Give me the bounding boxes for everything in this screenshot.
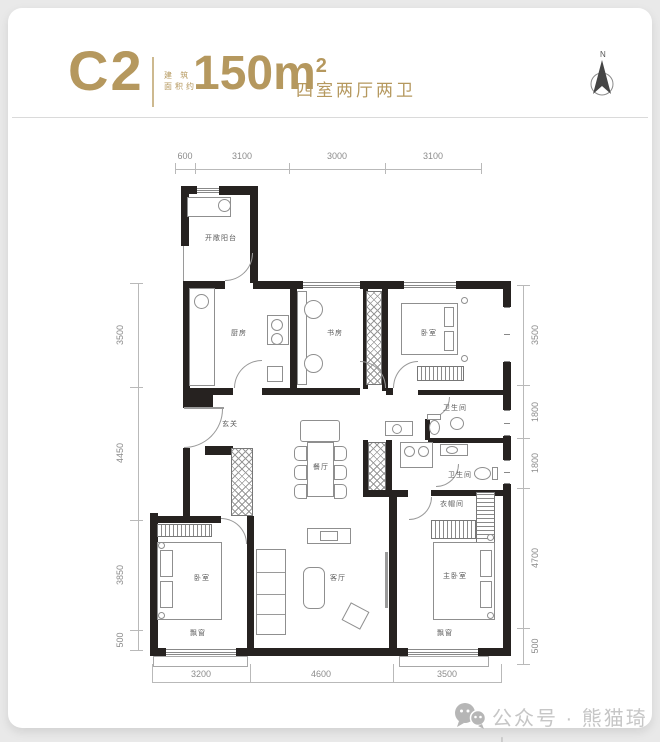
sofa-cushion-line: [257, 594, 285, 595]
wall-segment: [181, 186, 197, 194]
dim-top-1: 3100: [232, 151, 252, 161]
console-detail: [320, 531, 338, 541]
bay-window-sill-right: [399, 656, 489, 667]
dim-tick: [250, 664, 251, 682]
pillow: [444, 331, 454, 351]
dining-chair: [294, 465, 307, 480]
pillow: [160, 581, 173, 608]
sofa-cushion-line: [257, 572, 285, 573]
burner: [271, 319, 283, 331]
sofa-cushion-line: [257, 614, 285, 615]
wechat-eye: [460, 710, 463, 713]
balcony-rail-line: [183, 246, 184, 283]
bath-lower-window: [504, 460, 510, 484]
dining-chair: [334, 465, 347, 480]
wall-segment: [503, 281, 511, 307]
wechat-eye: [467, 710, 470, 713]
dim-tick: [517, 385, 530, 386]
room-label-dining: 餐厅: [313, 462, 329, 472]
dim-tick: [517, 285, 530, 286]
entry-door-leaf: [184, 407, 224, 409]
wall-segment: [363, 490, 408, 497]
wall-segment: [456, 281, 510, 289]
bay-right-window: [408, 649, 478, 655]
bath-sink: [450, 417, 464, 430]
dim-bottom-1: 4600: [311, 669, 331, 679]
dim-tick: [130, 650, 143, 651]
nightstand-lamp: [461, 355, 468, 362]
wechat-bubble-small: [471, 711, 486, 726]
wall-segment: [389, 497, 397, 648]
compass-needle: [593, 60, 611, 94]
room-label-bay-right: 飘窗: [437, 628, 453, 638]
wall-segment: [478, 648, 510, 656]
room-label-cloakroom: 衣帽间: [440, 499, 464, 509]
dim-right-1: 1800: [530, 402, 540, 422]
radiator: [157, 524, 212, 537]
wall-segment: [247, 516, 254, 648]
coffee-table: [303, 567, 325, 609]
dim-tick: [517, 664, 530, 665]
wechat-eye: [474, 716, 477, 719]
wall-segment: [205, 446, 233, 455]
bedroom-window: [404, 282, 456, 288]
pillow: [480, 550, 492, 577]
vanity-sink: [392, 424, 402, 434]
dim-tick: [385, 163, 386, 174]
wall-segment: [386, 388, 393, 395]
wall-segment: [183, 448, 190, 516]
kitchen-sink: [194, 294, 209, 309]
dim-right-0: 3500: [530, 325, 540, 345]
room-label-kitchen: 厨房: [231, 328, 247, 338]
bath-sink: [446, 446, 458, 454]
layout-text: 四室两厅两卫: [296, 76, 416, 101]
wall-segment: [386, 440, 392, 497]
dim-top-2: 3000: [327, 151, 347, 161]
dim-left-0: 3500: [115, 325, 125, 345]
dim-left-1: 4450: [115, 443, 125, 463]
tv-on-wall: [385, 552, 388, 608]
floorplan-card: [8, 8, 652, 728]
study-chair: [304, 300, 323, 319]
foyer-closet-hatch: [231, 448, 253, 516]
nightstand-lamp: [158, 612, 165, 619]
room-label-study: 书房: [327, 328, 343, 338]
wall-segment: [250, 186, 258, 283]
room-label-bath-lower: 卫生间: [448, 470, 472, 480]
header-divider: [152, 57, 154, 107]
wardrobe: [417, 366, 464, 381]
dim-line-right: [523, 285, 524, 665]
washer-drum: [218, 199, 231, 212]
pillow: [444, 307, 454, 327]
dim-tick: [517, 488, 530, 489]
compass-icon: N: [584, 46, 620, 108]
wechat-eye: [479, 716, 482, 719]
dim-right-4: 500: [530, 638, 540, 653]
dim-tick: [517, 628, 530, 629]
toilet-tank: [492, 467, 498, 480]
room-label-foyer: 玄关: [222, 419, 238, 429]
header-rule: [12, 117, 648, 118]
dim-tick: [481, 163, 482, 174]
dim-tick: [130, 520, 143, 521]
dim-top-3: 3100: [423, 151, 443, 161]
dim-tick: [289, 163, 290, 174]
dim-tick: [175, 163, 176, 174]
wall-segment: [262, 388, 360, 395]
floorplan-page: C2 建 筑 面积约 150m2 四室两厅两卫 N 600 3100 3000 …: [0, 0, 660, 742]
dining-chair: [334, 484, 347, 499]
bath-upper-window: [504, 410, 510, 436]
dim-right-3: 4700: [530, 548, 540, 568]
dim-bottom-0: 3200: [191, 669, 211, 679]
nightstand-lamp: [461, 297, 468, 304]
dining-chair: [334, 446, 347, 461]
watermark-text: 公众号 · 熊猫琦士: [492, 702, 660, 742]
wall-segment: [418, 390, 505, 395]
dining-chair: [294, 446, 307, 461]
toilet: [429, 420, 440, 435]
room-label-bedroom-top: 卧室: [421, 328, 437, 338]
dim-top-0: 600: [177, 151, 192, 161]
wechat-icon: [452, 701, 488, 731]
room-label-bay-left: 飘窗: [190, 628, 206, 638]
study-window: [303, 282, 360, 288]
wall-segment: [183, 388, 233, 395]
sofa: [256, 549, 286, 635]
room-label-master: 主卧室: [443, 571, 467, 581]
wardrobe: [431, 520, 476, 539]
wall-segment: [236, 648, 408, 656]
dim-tick: [130, 630, 143, 631]
toilet: [474, 467, 491, 480]
dryer: [418, 446, 429, 457]
dim-tick: [195, 163, 196, 174]
wall-segment: [503, 362, 511, 410]
balcony-window: [197, 188, 219, 193]
dim-left-3: 500: [115, 632, 125, 647]
burner: [271, 333, 283, 345]
dim-tick: [130, 283, 143, 284]
wall-segment: [428, 438, 505, 443]
room-label-living: 客厅: [330, 573, 346, 583]
wall-segment: [152, 516, 221, 523]
dim-tick: [517, 438, 530, 439]
bay-left-window: [166, 649, 236, 655]
study-chair: [304, 354, 323, 373]
dim-line-left: [138, 283, 139, 650]
room-label-bedroom-left: 卧室: [194, 573, 210, 583]
nightstand-lamp: [487, 612, 494, 619]
dim-tick: [393, 664, 394, 682]
nightstand-lamp: [158, 542, 165, 549]
plan-code: C2: [68, 38, 144, 103]
bedroom-side-window: [504, 307, 510, 362]
dim-tick: [130, 387, 143, 388]
dim-tick: [501, 664, 502, 682]
nightstand-lamp: [487, 534, 494, 541]
room-label-bath-upper: 卫生间: [443, 403, 467, 413]
compass-n-label: N: [600, 50, 606, 59]
dim-bottom-2: 3500: [437, 669, 457, 679]
room-label-balcony: 开敞阳台: [205, 233, 237, 243]
pillow: [480, 581, 492, 608]
pillow: [160, 550, 173, 577]
dining-chair: [294, 484, 307, 499]
kitchen-appliance: [267, 366, 283, 382]
wall-segment: [290, 281, 297, 395]
bay-window-sill-left: [153, 656, 248, 667]
dining-bench: [300, 420, 340, 442]
dim-left-2: 3850: [115, 565, 125, 585]
dim-line-bottom: [152, 682, 502, 683]
dim-line-top: [175, 169, 481, 170]
washer: [404, 446, 415, 457]
area-superscript: 2: [316, 55, 327, 77]
dim-right-2: 1800: [530, 453, 540, 473]
shaft-hatch: [368, 442, 386, 494]
wall-segment: [503, 484, 511, 656]
